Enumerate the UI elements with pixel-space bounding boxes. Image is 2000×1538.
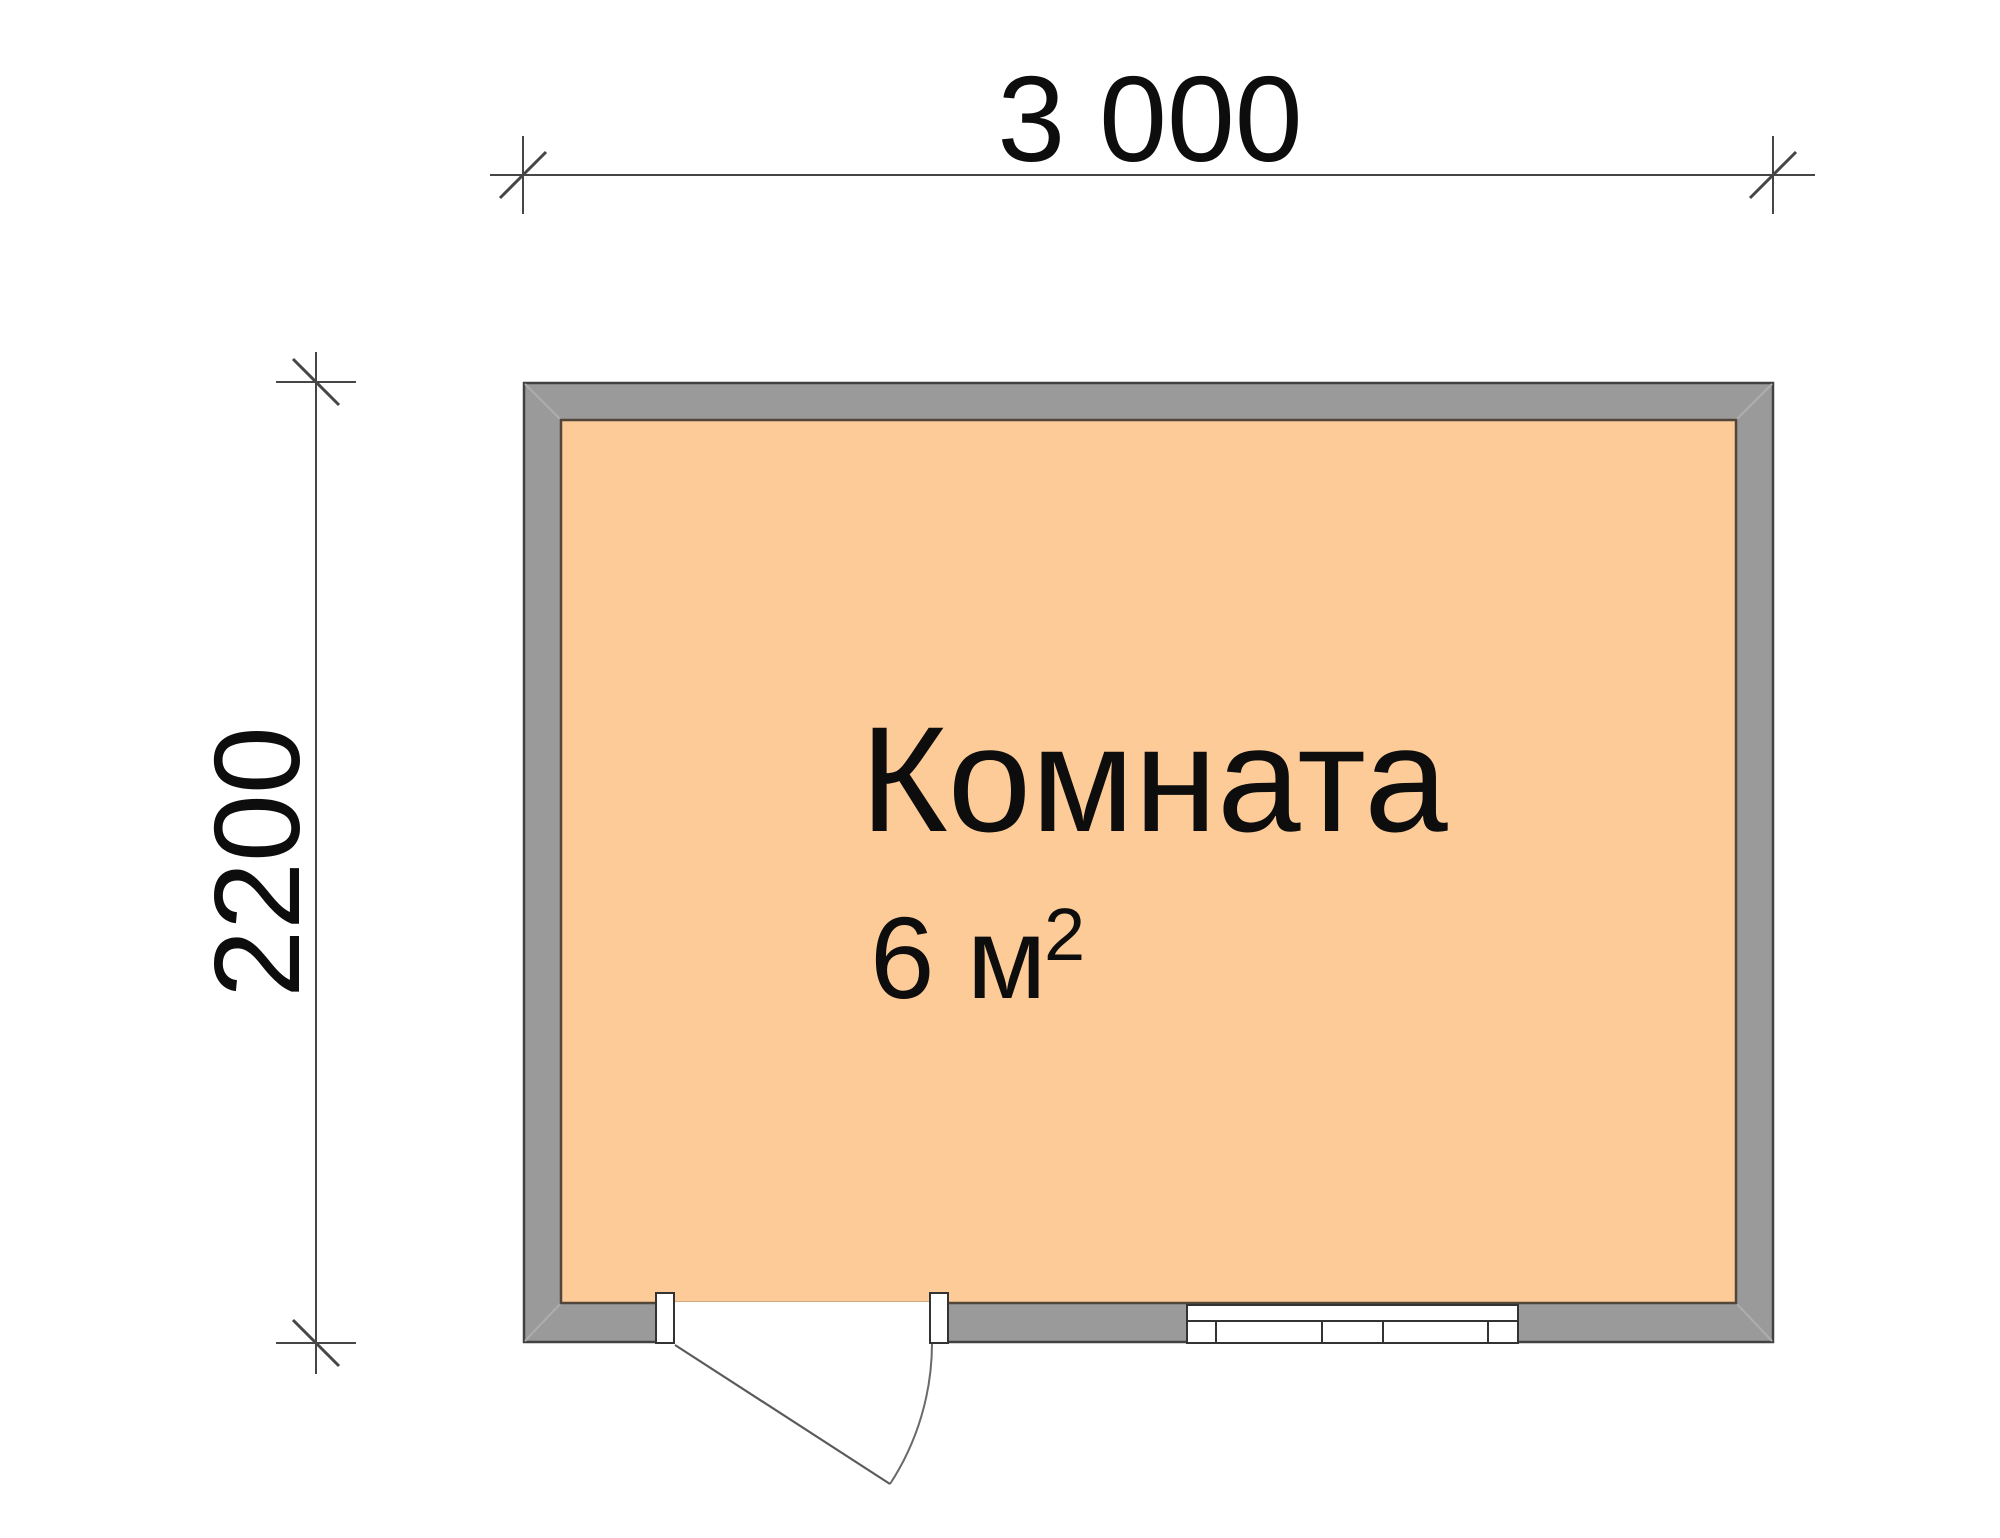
room-area-superscript: 2 xyxy=(1044,893,1085,976)
door-jamb-left xyxy=(656,1293,674,1343)
door-swing-arc xyxy=(890,1344,932,1484)
dim-width-label: 3 000 xyxy=(997,51,1302,187)
floor-plan-svg: 3 000 2200 Комната 6 м 2 xyxy=(0,0,2000,1538)
window-frame xyxy=(1187,1305,1518,1343)
room-name-label: Комната xyxy=(860,695,1448,863)
room-area-label: 6 м xyxy=(870,893,1047,1023)
floor-plan: 3 000 2200 Комната 6 м 2 xyxy=(0,0,2000,1538)
door-opening xyxy=(674,1302,930,1349)
dim-height-label: 2200 xyxy=(189,726,325,997)
door-jamb-right xyxy=(930,1293,948,1343)
door-leaf xyxy=(675,1345,890,1484)
